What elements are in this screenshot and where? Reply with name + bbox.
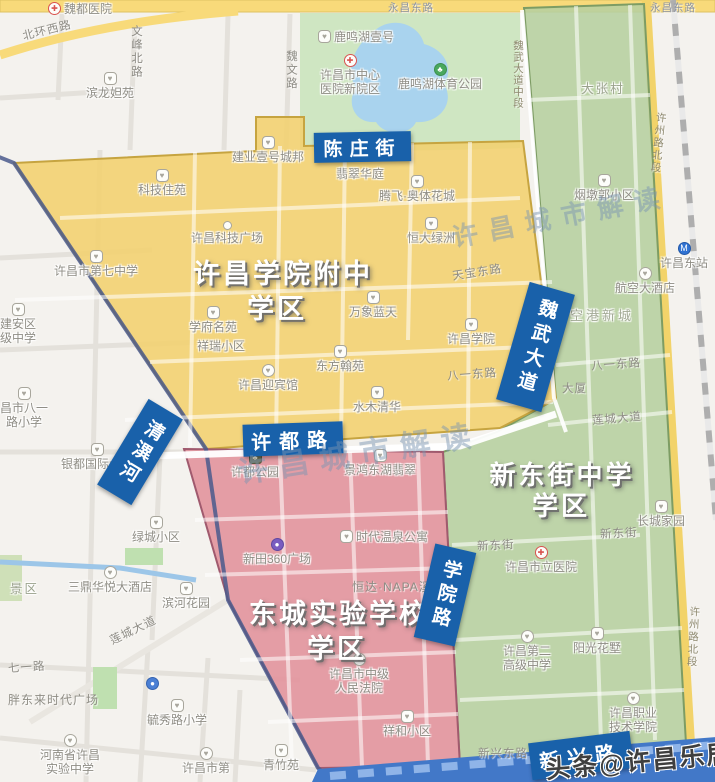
district-title-green-line2: 学区 — [532, 486, 590, 523]
poi-yangguang: ♥ 阳光花墅 — [573, 627, 621, 655]
residence-icon: ♥ — [370, 386, 383, 399]
building-label-dasha: 大厦 — [562, 380, 587, 396]
poi-xintian360: ● 新田360广场 — [243, 538, 311, 566]
poi-no2-senior: ♥ 许昌第二 高级中学 — [503, 630, 551, 673]
poi-xianghe: ♥ 祥和小区 — [383, 710, 431, 738]
poi-no7-school: ♥ 许昌市第七中学 — [54, 250, 138, 278]
residence-icon: ♥ — [149, 516, 162, 529]
school-icon: ♥ — [89, 250, 102, 263]
poi-hangkong-hotel: ♥ 航空大酒店 — [615, 267, 675, 295]
residence-icon: ♥ — [590, 627, 603, 640]
hospital-icon: ✚ — [48, 2, 61, 15]
residence-icon: ♥ — [318, 30, 331, 43]
poi-sanding-hotel: ♥ 三鼎华悦大酒店 — [68, 566, 152, 594]
school-icon: ♥ — [17, 387, 30, 400]
school-icon: ♥ — [199, 747, 212, 760]
poi-shili-hospital: ✚ 许昌市立医院 — [505, 546, 577, 574]
poi-wanxiang: ♥ 万象蓝天 — [349, 291, 397, 319]
poi-xiangrui: 祥瑞小区 — [197, 339, 245, 353]
poi-jianan-school: ♥ 建安区 级中学 — [0, 303, 36, 346]
poi-keji-plaza: 许昌科技广场 — [191, 221, 263, 245]
residence-icon: ♥ — [424, 217, 437, 230]
district-title-yellow-line1: 许昌学院附中 — [193, 252, 373, 291]
poi-weidu-hospital: ✚ 魏都医院 — [48, 2, 112, 16]
poi-changcheng: ♥ 长城家园 — [637, 500, 685, 528]
poi-dongfang: ♥ 东方翰苑 — [316, 345, 364, 373]
residence-icon: ♥ — [411, 175, 424, 188]
hospital-icon: ✚ — [534, 546, 547, 559]
residence-icon: ♥ — [654, 500, 667, 513]
street-sign-chenzhuangjie: 陈庄街 — [314, 131, 412, 163]
residence-icon: ♥ — [103, 72, 116, 85]
poi-bayi-primary: ♥ 昌市八一 路小学 — [0, 387, 48, 430]
school-icon: ♥ — [11, 303, 24, 316]
mall-icon: ● — [271, 538, 284, 551]
school-icon: ♥ — [626, 692, 639, 705]
building-icon: ♥ — [90, 443, 103, 456]
park-icon: ♣ — [433, 63, 446, 76]
poi-lvcheng: ♥ 绿城小区 — [132, 516, 180, 544]
road-label-xindong-2: 新东街 — [600, 524, 638, 542]
school-icon: ♥ — [170, 699, 183, 712]
map-canvas[interactable]: 永昌东路 永昌东路 北环西路 文峰北路 魏文路 魏武大道中段 天宝东路 八一东路… — [0, 0, 715, 782]
poi-zhiye-college: ♥ 许昌职业 技术学院 — [609, 692, 657, 735]
residence-icon: ♥ — [179, 582, 192, 595]
road-label-yongchang-e: 永昌东路 — [650, 0, 696, 15]
poi-xuchang-di: ♥ 许昌市第 — [182, 747, 230, 775]
road-label-yongchang-w: 永昌东路 — [388, 0, 434, 15]
poi-binlong: ♥ 滨龙妲苑 — [86, 72, 134, 100]
hotel-icon: ♥ — [103, 566, 116, 579]
hospital-icon: ✚ — [343, 54, 356, 67]
residence-icon: ♥ — [340, 530, 353, 543]
hotel-icon: ♥ — [261, 364, 274, 377]
poi-konggang: 空港新城 — [570, 308, 634, 324]
poi-feicui: 翡翠华庭 — [336, 167, 384, 181]
poi-central-hospital: ✚ 许昌市中心 医院新院区 — [320, 54, 380, 97]
residence-icon: ♥ — [206, 306, 219, 319]
poi-yuxiu-primary: ♥ 毓秀路小学 — [147, 699, 207, 727]
residence-icon: ♥ — [597, 174, 610, 187]
road-label-wenfengbei: 文峰北路 — [128, 25, 144, 79]
residence-icon: ♥ — [366, 291, 379, 304]
poi-pangdonglai: 胖东来时代广场 — [8, 691, 99, 708]
poi-luminghu-yihao: ♥ 鹿鸣湖壹号 — [318, 30, 394, 44]
poi-keji-zhuyuan: ♥ 科技住苑 — [138, 169, 186, 197]
poi-yingbinguan: ♥ 许昌迎宾馆 — [238, 364, 298, 392]
place-icon — [222, 221, 231, 230]
road-label-weiwu-mid: 魏武大道中段 — [511, 40, 526, 109]
district-title-red-line1: 东城实验学校 — [249, 592, 429, 631]
school-icon: ♥ — [63, 734, 76, 747]
district-title-yellow-line2: 学区 — [247, 287, 307, 326]
road-label-qiyi: 七一路 — [7, 658, 46, 677]
school-icon: ♥ — [520, 630, 533, 643]
district-title-red-line2: 学区 — [307, 627, 367, 666]
poi-luminghu-park: ♣ 鹿鸣湖体育公园 — [398, 63, 482, 91]
residence-icon: ♥ — [400, 710, 413, 723]
train-station-icon: M — [677, 242, 690, 255]
poi-xuchang-college: ♥ 许昌学院 — [447, 318, 495, 346]
residence-icon: ♥ — [274, 744, 287, 757]
poi-binhe-garden: ♥ 滨河花园 — [162, 582, 210, 610]
school-icon: ♥ — [464, 318, 477, 331]
residence-icon: ♥ — [155, 169, 168, 182]
poi-dazhang-village: 大张村 — [581, 82, 625, 97]
poi-tengfei: ♥ 腾飞·奥体花城 — [379, 175, 455, 203]
road-label-weiwen: 魏文路 — [283, 50, 299, 91]
poi-xuefu: ♥ 学府名苑 — [189, 306, 237, 334]
residence-icon: ♥ — [333, 345, 346, 358]
poi-shidai: ♥ 时代温泉公寓 — [340, 530, 428, 544]
residence-icon: ♥ — [261, 136, 274, 149]
poi-jingqu: 景区 — [10, 582, 39, 597]
poi-shuimu: ♥ 水木清华 — [353, 386, 401, 414]
poi-hengda-lvzhou: ♥ 恒大绿洲 — [407, 217, 455, 245]
hotel-icon: ♥ — [638, 267, 651, 280]
poi-qingzhu: ♥ 青竹苑 — [263, 744, 299, 772]
poi-henan-shiyan: ♥ 河南省许昌 实验中学 — [40, 734, 100, 777]
plaza-icon: ● — [146, 677, 159, 690]
poi-jianye: ♥ 建业壹号城邦 — [232, 136, 304, 164]
road-label-xinxingdong: 新兴东路 — [478, 745, 528, 761]
